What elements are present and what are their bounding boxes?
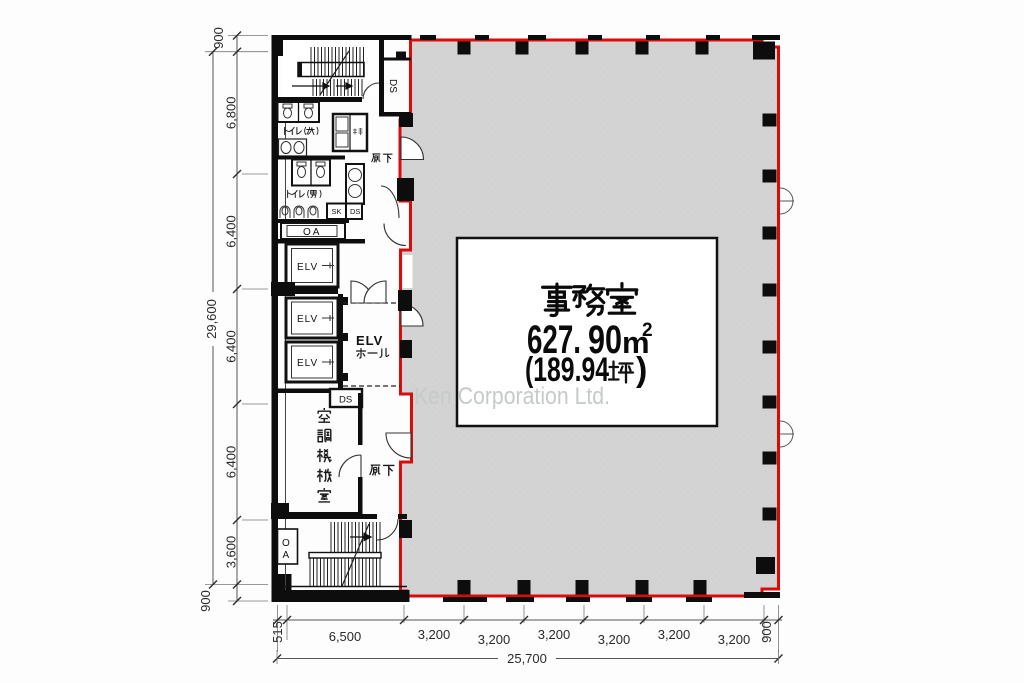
svg-text:515: 515 bbox=[270, 621, 285, 643]
svg-text:900: 900 bbox=[759, 621, 774, 643]
svg-text:A: A bbox=[283, 550, 290, 561]
svg-text:): ) bbox=[636, 351, 647, 389]
svg-text:6,800: 6,800 bbox=[224, 97, 239, 130]
svg-text:6,400: 6,400 bbox=[224, 330, 239, 363]
svg-text:ELV: ELV bbox=[297, 358, 318, 369]
svg-text:O: O bbox=[282, 538, 290, 549]
svg-text:ELV: ELV bbox=[297, 314, 318, 325]
svg-text:6,400: 6,400 bbox=[224, 446, 239, 479]
svg-text:3,200: 3,200 bbox=[478, 632, 511, 647]
svg-text:3,200: 3,200 bbox=[418, 627, 451, 642]
svg-text:SK: SK bbox=[332, 207, 342, 216]
svg-text:900: 900 bbox=[211, 27, 226, 49]
svg-text:900: 900 bbox=[198, 590, 213, 612]
svg-text:DS: DS bbox=[350, 207, 360, 216]
svg-text:3,200: 3,200 bbox=[598, 632, 631, 647]
svg-text:3,600: 3,600 bbox=[224, 536, 239, 569]
svg-text:3,200: 3,200 bbox=[718, 632, 751, 647]
svg-text:OA: OA bbox=[303, 227, 321, 238]
svg-text:3,200: 3,200 bbox=[658, 627, 691, 642]
svg-text:ELV: ELV bbox=[356, 333, 383, 348]
svg-text:29,600: 29,600 bbox=[204, 299, 219, 339]
svg-text:DS: DS bbox=[387, 79, 398, 93]
svg-text:3,200: 3,200 bbox=[538, 627, 571, 642]
svg-text:DS: DS bbox=[339, 395, 352, 406]
svg-text:Ken Corporation Ltd.: Ken Corporation Ltd. bbox=[414, 383, 610, 410]
svg-text:ELV: ELV bbox=[297, 262, 318, 273]
svg-text:25,700: 25,700 bbox=[507, 651, 547, 666]
svg-text:6,400: 6,400 bbox=[224, 215, 239, 248]
svg-text:6,500: 6,500 bbox=[329, 629, 362, 644]
svg-text:2: 2 bbox=[642, 320, 653, 341]
